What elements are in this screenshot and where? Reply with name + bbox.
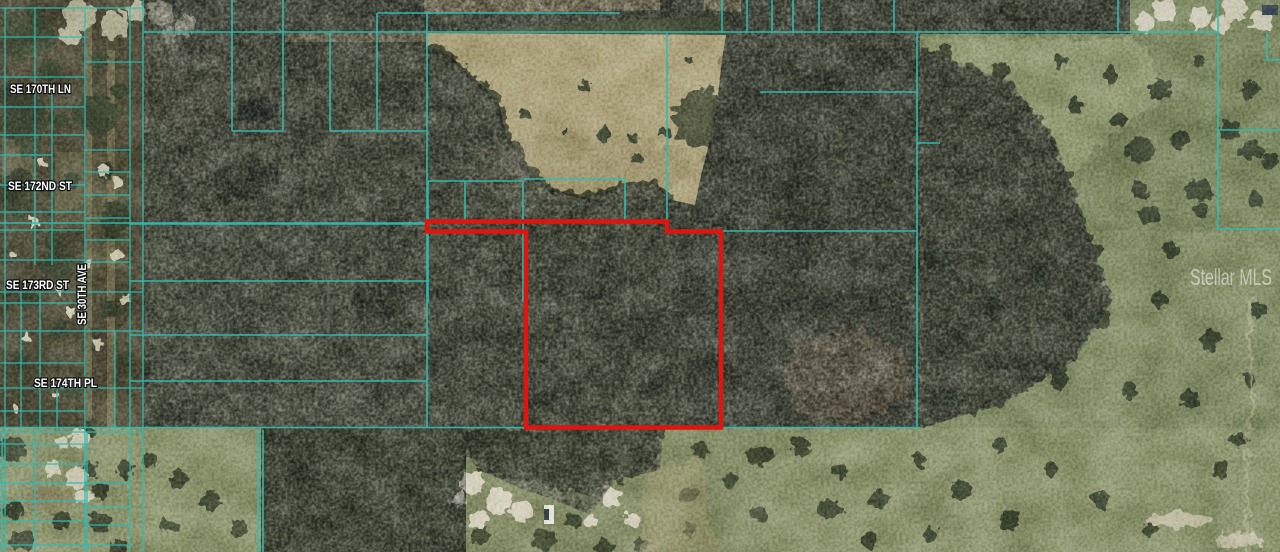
svg-text:SE 173RD ST: SE 173RD ST — [6, 280, 69, 292]
svg-text:SE 30TH AVE: SE 30TH AVE — [77, 264, 89, 325]
svg-text:SE 174TH PL: SE 174TH PL — [34, 378, 97, 390]
svg-text:Stellar MLS: Stellar MLS — [1190, 264, 1272, 290]
svg-text:SE 172ND ST: SE 172ND ST — [8, 181, 72, 193]
svg-text:SE 170TH LN: SE 170TH LN — [10, 84, 71, 96]
